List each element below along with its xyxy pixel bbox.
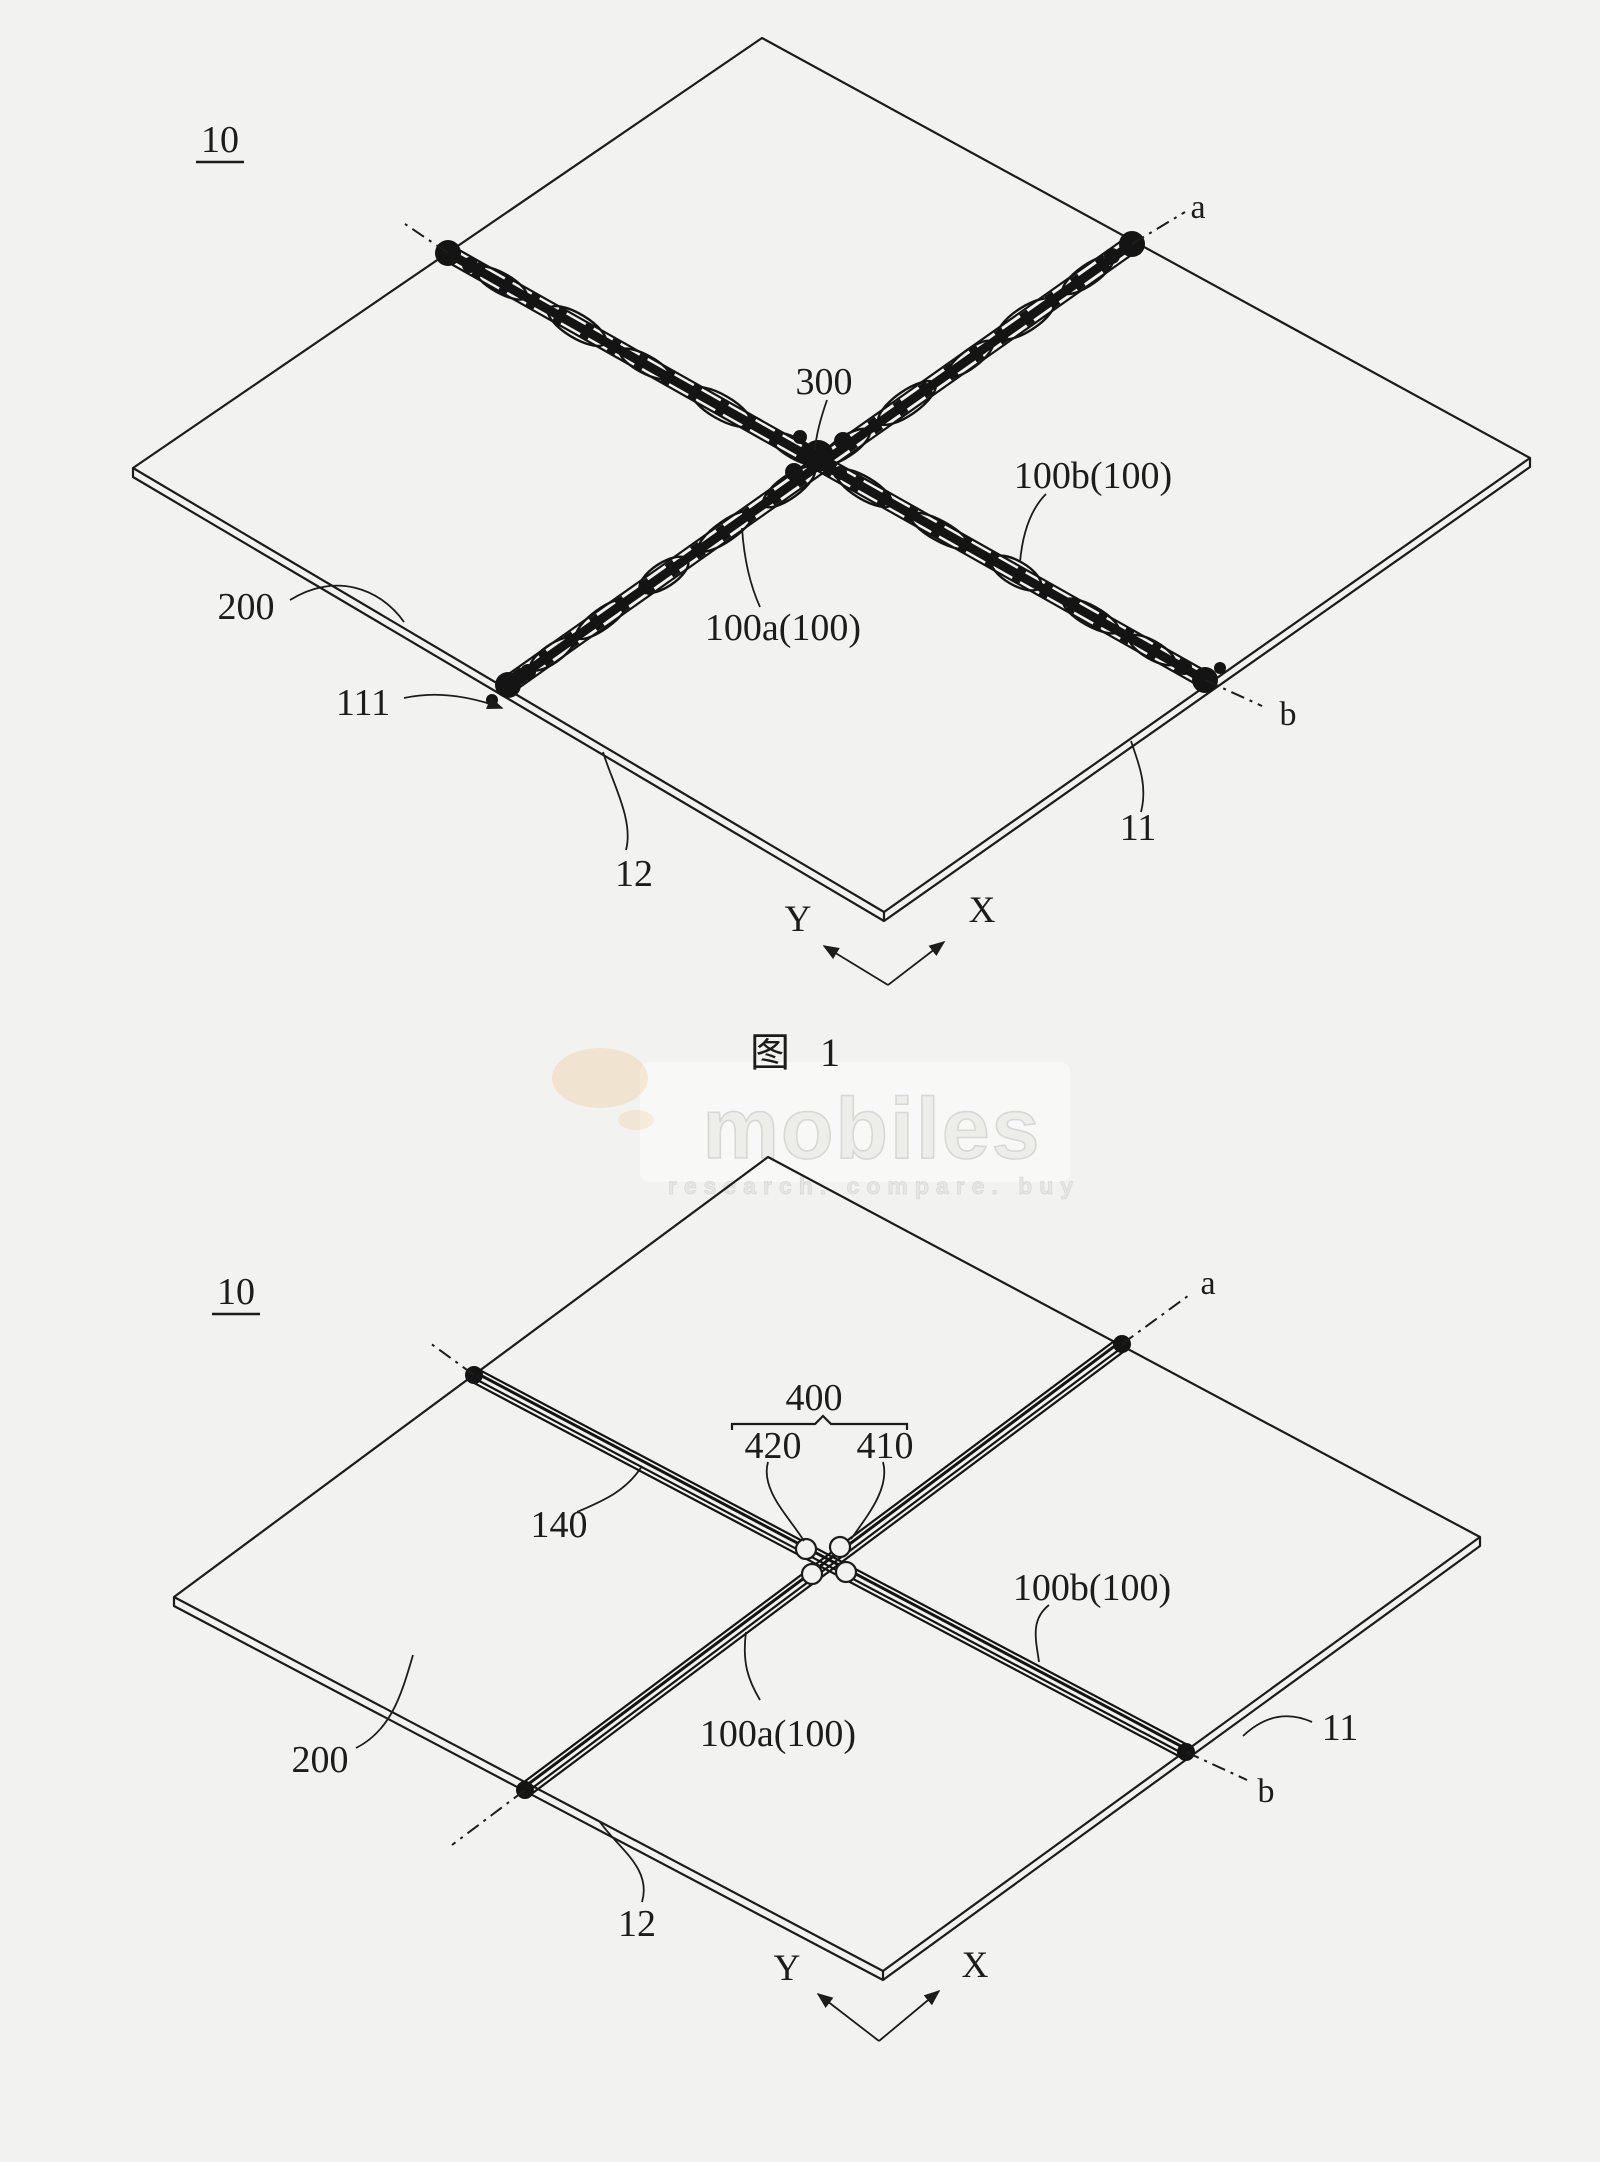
fig2-label-section-a: a — [1200, 1265, 1215, 1302]
fig1-label-assembly: 10 — [201, 119, 239, 161]
fig2-leader-100a — [745, 1632, 760, 1700]
fig2-leader-11 — [1243, 1716, 1312, 1736]
fig1-label-section-a: a — [1190, 189, 1205, 226]
watermark-orange-swirl-icon — [552, 1048, 648, 1108]
fig1-label-100a: 100a(100) — [705, 607, 861, 649]
fig2-leader-200 — [356, 1655, 413, 1748]
fig1-leader-100b — [1020, 494, 1046, 562]
fig2-label-assembly: 10 — [217, 1271, 255, 1313]
fig1-axis-indicator — [824, 942, 944, 985]
fig2-label-200: 200 — [292, 1739, 349, 1781]
fig2-section-stub-nw — [430, 1343, 474, 1375]
fig1-section-stub-nw — [405, 224, 448, 253]
figure2-drawing: 10 a 400 420 410 140 100b(100) 100a(100)… — [174, 1157, 1480, 2041]
fig2-label-12: 12 — [618, 1903, 656, 1945]
fig2-label-11: 11 — [1322, 1707, 1359, 1749]
fig2-leader-100b — [1036, 1605, 1049, 1662]
fig2-label-section-b: b — [1258, 1773, 1275, 1810]
fig2-axis-y-label: Y — [774, 1948, 801, 1989]
fig2-section-stub-sw — [452, 1790, 525, 1845]
fig1-leader-100a — [742, 528, 760, 607]
fig1-label-100b: 100b(100) — [1014, 455, 1172, 497]
fig2-axis-indicator — [818, 1991, 939, 2041]
fig2-section-line-a — [1122, 1293, 1192, 1344]
fig1-section-line-b — [1205, 680, 1262, 706]
fig1-section-line-a — [1132, 212, 1185, 244]
fig2-section-line-b — [1186, 1752, 1247, 1780]
fig1-label-section-b: b — [1280, 696, 1297, 733]
fig2-label-100b: 100b(100) — [1013, 1567, 1171, 1609]
figure1-drawing: 10 a 300 100b(100) 200 100a(100) 111 b 1… — [133, 38, 1530, 985]
patent-drawing-canvas: 10 a 300 100b(100) 200 100a(100) 111 b 1… — [0, 0, 1600, 2162]
fig1-label-12: 12 — [615, 853, 653, 895]
fig1-junction-300 — [785, 430, 852, 481]
figure1-caption: 图 1 — [750, 1030, 850, 1075]
watermark-brand: mobiles — [703, 1081, 1042, 1177]
fig1-label-300: 300 — [796, 361, 853, 403]
fig2-label-140: 140 — [531, 1504, 588, 1546]
fig2-label-400: 400 — [786, 1377, 843, 1419]
fig1-label-11: 11 — [1120, 807, 1157, 849]
fig2-wire-band-100b — [465, 1366, 1195, 1761]
fig1-label-200: 200 — [218, 586, 275, 628]
fig1-leader-11 — [1131, 741, 1143, 812]
fig2-label-410: 410 — [857, 1425, 914, 1467]
fig1-axis-x-label: X — [969, 890, 996, 931]
fig2-axis-x-label: X — [962, 1945, 989, 1986]
patent-page: 10 a 300 100b(100) 200 100a(100) 111 b 1… — [0, 0, 1600, 2162]
fig1-label-111: 111 — [336, 682, 390, 724]
watermark-orange-dot-icon — [618, 1110, 654, 1130]
fig1-axis-y-label: Y — [785, 899, 812, 940]
fig2-label-420: 420 — [745, 1425, 802, 1467]
fig2-label-100a: 100a(100) — [700, 1713, 856, 1755]
